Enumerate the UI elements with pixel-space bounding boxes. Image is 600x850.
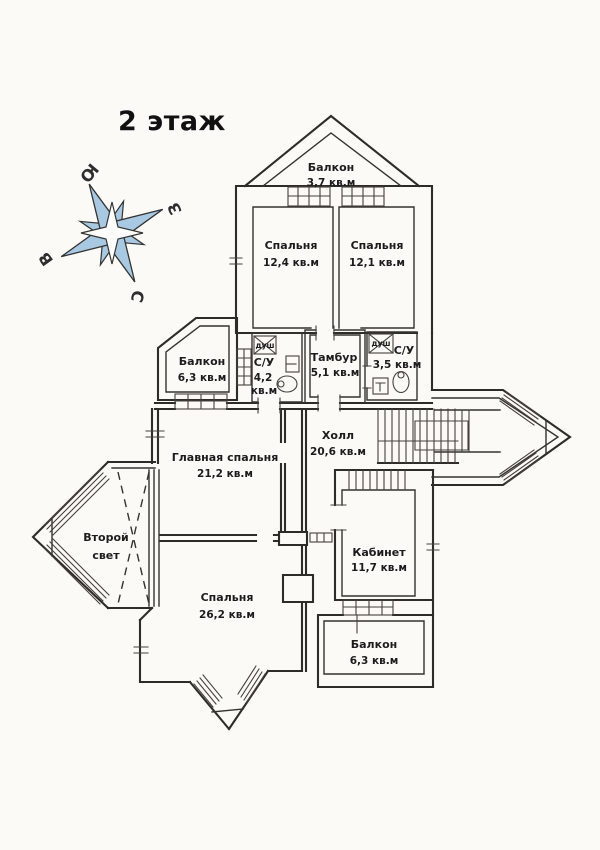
compass-rose-icon: Ю З В С [34,160,185,306]
staircase [378,409,469,463]
room-labels: Балкон 3,7 кв.м Спальня 12,4 кв.м Спальн… [83,161,421,667]
label-balcony-left: Балкон [179,355,226,368]
area-bedroom-top-right: 12,1 кв.м [349,257,405,269]
label-hall: Холл [322,429,354,442]
floor-plan-page: 2 этаж Ю З В С [0,0,600,850]
label-bedroom-top-right: Спальня [351,239,404,252]
compass-letter-north: С [127,288,148,304]
area-bedroom-bottom: 26,2 кв.м [199,609,255,621]
label-office: Кабинет [352,546,406,559]
toilet-left-icon [277,376,297,392]
label-second-light-2: свет [92,549,120,562]
label-balcony-bottom: Балкон [351,638,398,651]
sink-right-icon [373,378,388,394]
sink-left-icon [286,356,299,372]
area-balcony-left: 6,3 кв.м [178,372,227,384]
area-balcony-top: 3,7 кв.м [307,177,356,189]
compass-letter-south: Ю [76,160,103,187]
floor-plan-drawing: Ю З В С [0,0,600,850]
label-balcony-top: Балкон [308,161,355,174]
label-master-bedroom: Главная спальня [172,451,279,464]
area-bathroom-left-unit: кв.м [251,385,277,397]
area-balcony-bottom: 6,3 кв.м [350,655,399,667]
compass-letter-east: В [34,248,57,269]
label-bedroom-bottom: Спальня [201,591,254,604]
area-bedroom-top-left: 12,4 кв.м [263,257,319,269]
label-bedroom-top-left: Спальня [265,239,318,252]
toilet-right-icon [393,372,409,393]
label-shower-left: душ [256,341,275,350]
label-shower-right: душ [372,339,391,348]
label-vestibule: Тамбур [311,351,358,364]
label-bathroom-left: С/У [254,356,275,369]
label-bathroom-right: С/У [394,344,415,357]
area-hall: 20,6 кв.м [310,446,366,458]
area-bathroom-right: 3,5 кв.м [373,359,422,371]
area-bathroom-left-value: 4,2 [254,372,273,384]
area-master-bedroom: 21,2 кв.м [197,468,253,480]
label-second-light-1: Второй [83,531,128,544]
compass-letter-west: З [164,199,186,217]
area-vestibule: 5,1 кв.м [311,367,360,379]
area-office: 11,7 кв.м [351,562,407,574]
